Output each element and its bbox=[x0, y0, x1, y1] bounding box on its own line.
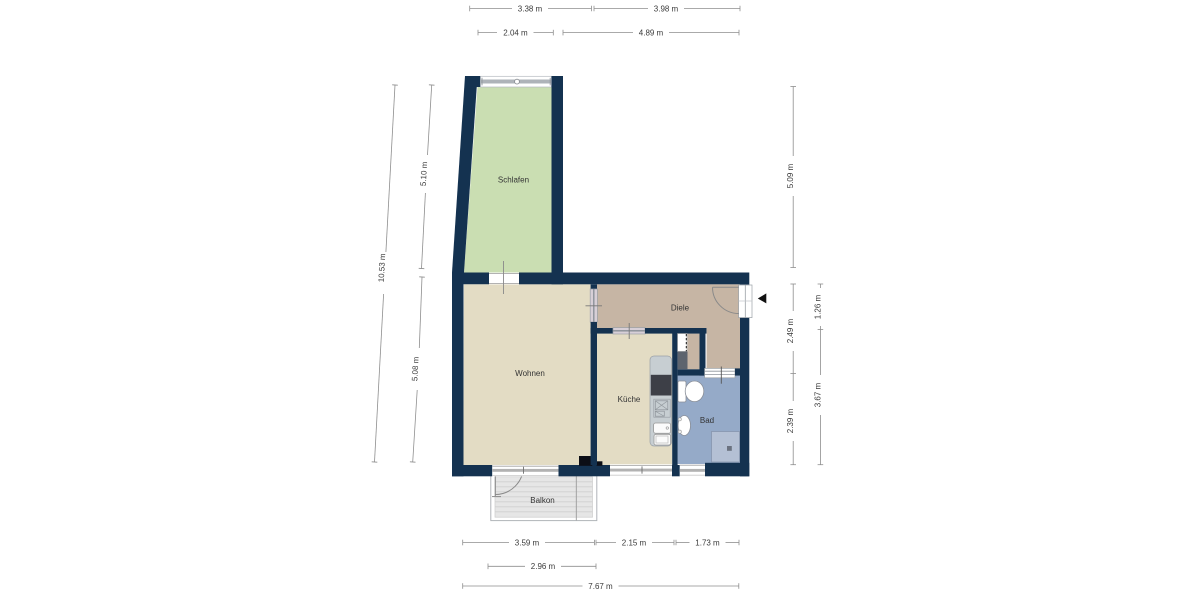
svg-text:4.89 m: 4.89 m bbox=[639, 28, 664, 37]
svg-text:2.04 m: 2.04 m bbox=[503, 28, 528, 37]
svg-text:1.73 m: 1.73 m bbox=[695, 538, 720, 547]
svg-text:3.98 m: 3.98 m bbox=[654, 4, 679, 13]
svg-text:3.67 m: 3.67 m bbox=[813, 382, 822, 407]
svg-text:2.39 m: 2.39 m bbox=[786, 408, 795, 433]
svg-text:Bad: Bad bbox=[700, 416, 714, 425]
svg-text:5.09 m: 5.09 m bbox=[786, 163, 795, 188]
svg-text:Küche: Küche bbox=[618, 395, 641, 404]
svg-text:2.15 m: 2.15 m bbox=[622, 538, 647, 547]
svg-text:5.08 m: 5.08 m bbox=[410, 356, 420, 381]
svg-text:10.53 m: 10.53 m bbox=[377, 253, 388, 283]
svg-text:1.26 m: 1.26 m bbox=[813, 294, 822, 319]
svg-text:3.59 m: 3.59 m bbox=[515, 538, 540, 547]
svg-text:5.10 m: 5.10 m bbox=[419, 161, 429, 186]
svg-text:Balkon: Balkon bbox=[530, 496, 554, 505]
svg-text:Schlafen: Schlafen bbox=[498, 176, 529, 185]
svg-text:Wohnen: Wohnen bbox=[515, 369, 545, 378]
svg-text:7.67 m: 7.67 m bbox=[588, 582, 613, 591]
svg-text:2.96 m: 2.96 m bbox=[531, 562, 556, 571]
svg-text:Diele: Diele bbox=[671, 304, 690, 313]
svg-text:3.38 m: 3.38 m bbox=[518, 4, 543, 13]
svg-text:2.49 m: 2.49 m bbox=[786, 318, 795, 343]
